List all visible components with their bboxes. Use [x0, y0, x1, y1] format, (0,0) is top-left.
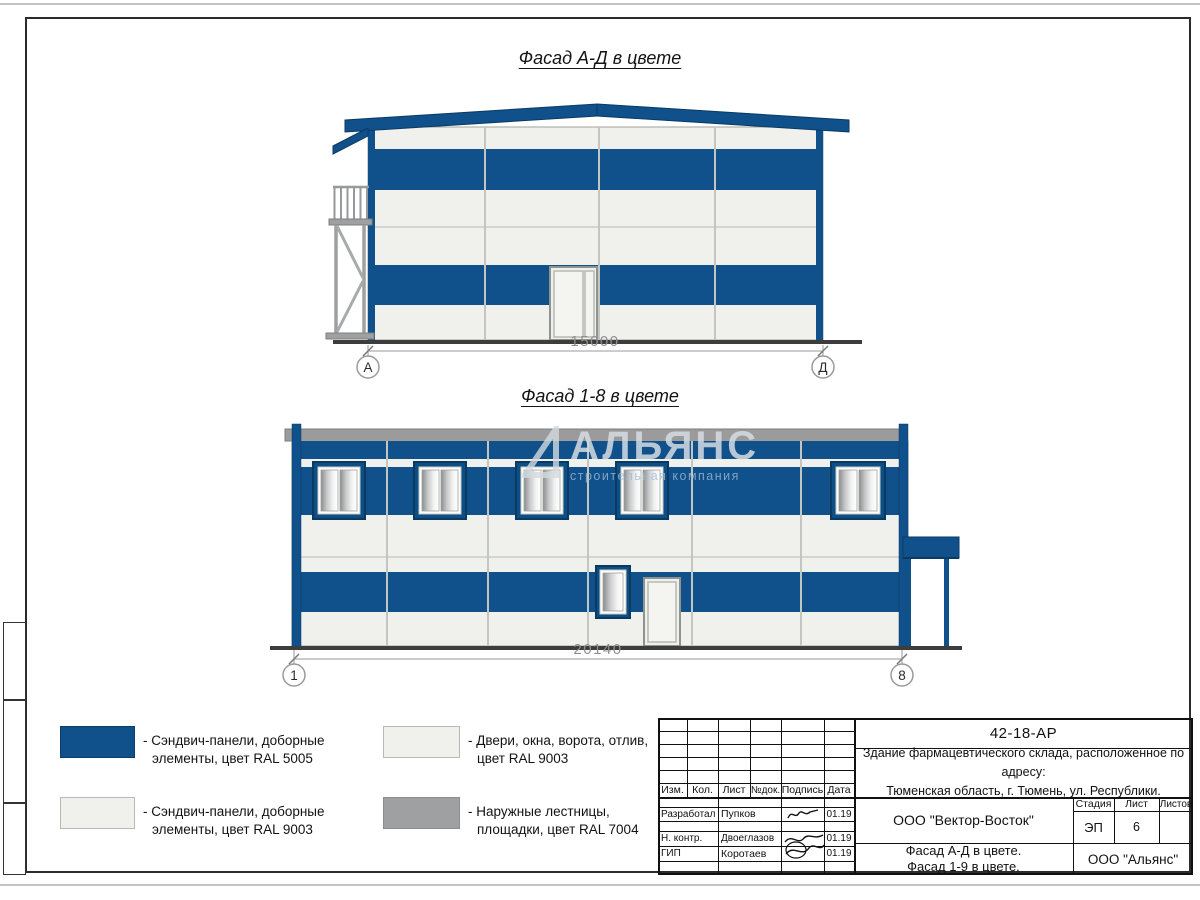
window — [516, 462, 568, 519]
tb-header-doc: №док. — [750, 783, 781, 797]
legend-label: - Сэндвич-панели, доборные элементы, цве… — [143, 732, 342, 768]
facade-18-title: Фасад 1-8 в цвете — [400, 386, 800, 407]
tb-header-list: Лист — [718, 783, 750, 797]
tb-name: Коротаев — [718, 846, 781, 861]
signature-icon — [786, 808, 820, 821]
tb-sheets-label: Листов — [1159, 797, 1193, 811]
tb-contractor: ООО "Вектор-Восток" — [854, 797, 1073, 843]
corner-trim — [816, 127, 823, 340]
tb-sheet-label: Лист — [1114, 797, 1159, 811]
door-ad — [550, 267, 597, 340]
tb-project-description: Здание фармацевтического склада, располо… — [854, 748, 1193, 797]
tb-header-podpis: Подпись — [781, 783, 824, 797]
door-18 — [644, 578, 680, 646]
stair-brace — [337, 226, 363, 278]
legend-label: - Сэндвич-панели, доборные элементы, цве… — [143, 803, 342, 839]
facade-ad-blue-band-upper — [368, 149, 823, 190]
small-window — [596, 566, 630, 618]
facade-ad-drawing: 15000 А Д — [326, 104, 862, 378]
window — [831, 462, 885, 519]
tb-header-kol: Кол. — [687, 783, 718, 797]
window — [616, 462, 668, 519]
tb-date: 01.19 — [824, 846, 854, 861]
facade-18-drawing: 20140 1 8 — [270, 424, 962, 686]
tb-header-izm: Изм. — [658, 783, 687, 797]
tb-name: Пупков — [718, 807, 781, 821]
axis-label-8: 8 — [898, 668, 906, 683]
tb-sheet-title: Фасад А-Д в цвете. Фасад 1-9 в цвете. — [854, 843, 1073, 875]
legend-swatch-ral9003 — [60, 797, 135, 829]
legend-swatch-ral9003 — [383, 726, 460, 758]
tb-stage-label: Стадия — [1073, 797, 1114, 811]
legend-swatch-ral5005 — [60, 726, 135, 758]
window — [414, 462, 466, 519]
dimension-value-18: 20140 — [573, 641, 622, 658]
canopy-post — [906, 559, 911, 646]
stair-platform — [329, 219, 372, 225]
legend-swatch-ral7004 — [383, 797, 460, 829]
tb-role: Разработал — [658, 807, 718, 821]
legend-label: - Двери, окна, ворота, отлив, цвет RAL 9… — [468, 732, 667, 768]
axis-label-d: Д — [818, 360, 827, 375]
legend-label: - Наружные лестницы, площадки, цвет RAL … — [468, 803, 667, 839]
corner-post — [292, 424, 301, 648]
window — [313, 462, 365, 519]
corner-trim — [368, 127, 375, 340]
tb-name: Двоеглазов — [718, 831, 781, 846]
tb-header-data: Дата — [824, 783, 854, 797]
parapet-blue-band — [292, 441, 908, 459]
canopy — [903, 537, 959, 646]
tb-sheet-value: 6 — [1114, 811, 1159, 843]
facade-ad-title: Фасад А-Д в цвете — [400, 48, 800, 69]
window-blue-band — [292, 467, 908, 515]
tb-stage-value: ЭП — [1073, 811, 1114, 843]
dimension-value-ad: 15000 — [570, 333, 619, 350]
axis-label-1: 1 — [290, 668, 298, 683]
stair-brace — [337, 281, 363, 332]
tb-role: Н. контр. — [658, 831, 718, 846]
external-stair — [326, 128, 374, 339]
tb-role: ГИП — [658, 846, 718, 861]
signature-icon — [782, 832, 826, 860]
tb-designer-org: ООО "Альянс" — [1073, 843, 1193, 875]
drawing-sheet: 15000 А Д — [0, 0, 1200, 900]
tb-sheets-value — [1159, 811, 1193, 843]
canopy-post — [944, 559, 949, 646]
roof-band-gray — [285, 429, 905, 441]
tb-date: 01.19 — [824, 807, 854, 821]
tb-date: 01.19 — [824, 831, 854, 846]
axis-label-a: А — [363, 360, 372, 375]
